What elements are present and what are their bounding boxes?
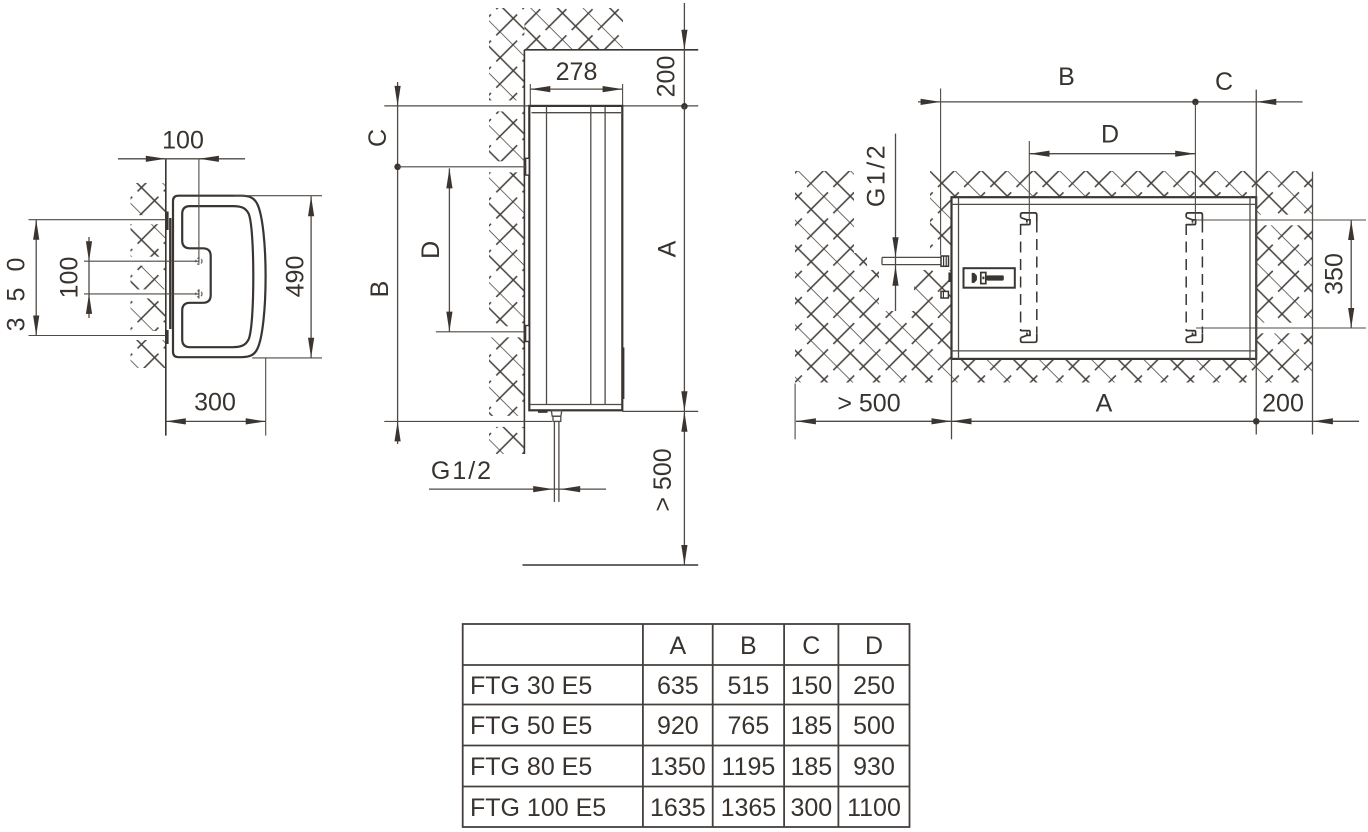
svg-text:FTG 50 E5: FTG 50 E5 <box>470 712 592 740</box>
svg-text:> 500: > 500 <box>649 448 677 511</box>
svg-text:515: 515 <box>728 672 770 700</box>
svg-text:300: 300 <box>194 389 236 417</box>
svg-text:200: 200 <box>653 56 681 98</box>
svg-text:A: A <box>654 240 682 257</box>
svg-text:930: 930 <box>853 753 895 781</box>
svg-text:C: C <box>1215 68 1233 96</box>
svg-text:635: 635 <box>657 672 699 700</box>
svg-text:100: 100 <box>56 257 84 299</box>
svg-text:490: 490 <box>282 256 310 298</box>
svg-text:B: B <box>740 632 757 660</box>
svg-text:278: 278 <box>556 58 598 86</box>
svg-text:100: 100 <box>162 127 204 155</box>
svg-text:D: D <box>417 241 445 259</box>
svg-text:G1/2: G1/2 <box>863 143 891 207</box>
svg-text:B: B <box>1058 63 1075 91</box>
svg-text:350: 350 <box>2 242 30 332</box>
svg-text:B: B <box>366 281 394 298</box>
svg-text:FTG 100 E5: FTG 100 E5 <box>470 794 606 822</box>
svg-text:920: 920 <box>657 712 699 740</box>
svg-text:> 500: > 500 <box>837 390 900 418</box>
svg-text:765: 765 <box>728 712 770 740</box>
svg-text:D: D <box>865 632 883 660</box>
svg-text:200: 200 <box>1262 390 1304 418</box>
svg-text:A: A <box>669 632 686 660</box>
svg-text:FTG 80 E5: FTG 80 E5 <box>470 753 592 781</box>
svg-text:500: 500 <box>853 712 895 740</box>
svg-text:1350: 1350 <box>650 753 706 781</box>
svg-text:185: 185 <box>790 753 832 781</box>
svg-text:150: 150 <box>790 672 832 700</box>
svg-text:1100: 1100 <box>847 794 901 822</box>
svg-text:1195: 1195 <box>722 753 776 781</box>
svg-text:C: C <box>802 632 820 660</box>
svg-text:1635: 1635 <box>650 794 706 822</box>
svg-text:FTG 30 E5: FTG 30 E5 <box>470 672 592 700</box>
svg-text:D: D <box>1101 121 1119 149</box>
svg-text:A: A <box>1096 390 1113 418</box>
svg-text:C: C <box>364 129 392 147</box>
svg-text:250: 250 <box>853 672 895 700</box>
svg-text:185: 185 <box>790 712 832 740</box>
svg-text:350: 350 <box>1321 253 1349 295</box>
svg-text:1365: 1365 <box>721 794 777 822</box>
svg-text:300: 300 <box>790 794 832 822</box>
svg-text:G1/2: G1/2 <box>431 457 493 485</box>
